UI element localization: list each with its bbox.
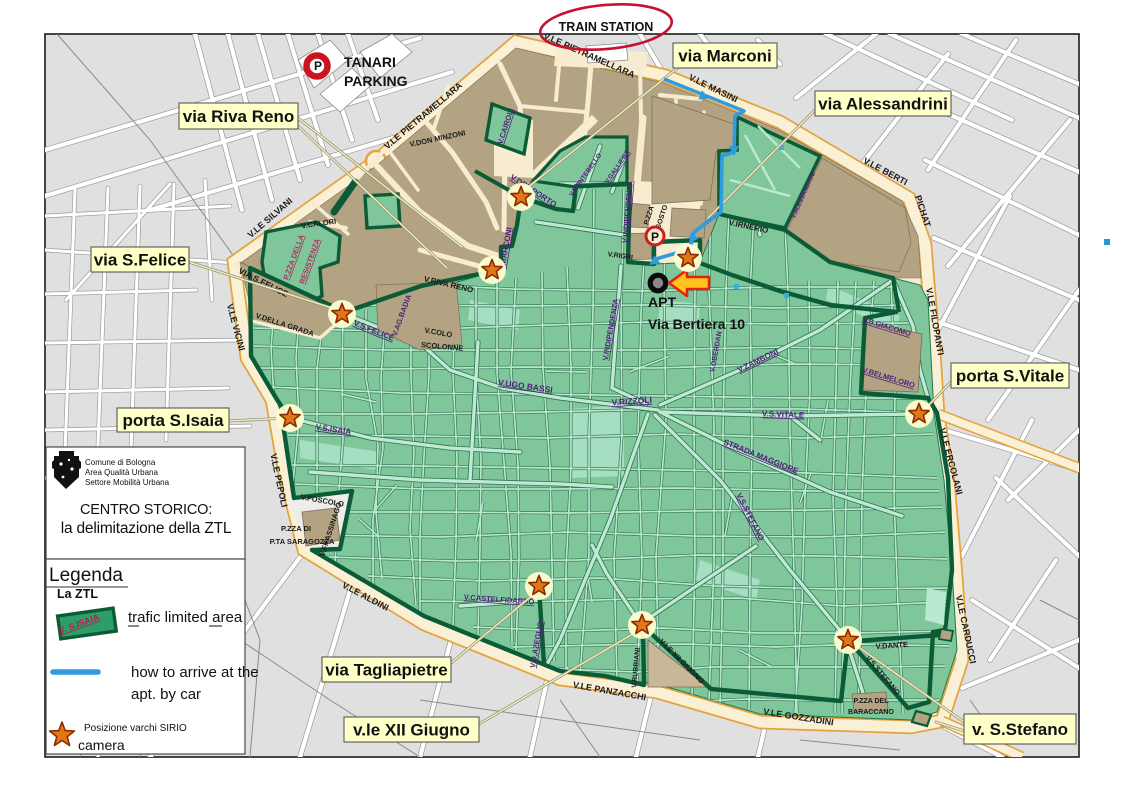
svg-text:la delimitazione della ZTL: la delimitazione della ZTL xyxy=(61,520,232,537)
svg-text:porta S.Vitale: porta S.Vitale xyxy=(956,367,1064,386)
svg-text:APT: APT xyxy=(648,294,676,310)
svg-text:via Marconi: via Marconi xyxy=(678,47,772,66)
svg-text:Area Qualità Urbana: Area Qualità Urbana xyxy=(85,468,158,477)
svg-text:CENTRO STORICO:: CENTRO STORICO: xyxy=(80,502,212,518)
svg-text:v.le XII Giugno: v.le XII Giugno xyxy=(353,721,470,740)
svg-text:TRAIN STATION: TRAIN STATION xyxy=(559,20,654,34)
svg-text:via Riva Reno: via Riva Reno xyxy=(183,107,295,126)
svg-text:V.S.VITALE: V.S.VITALE xyxy=(762,409,805,419)
svg-text:Via Bertiera 10: Via Bertiera 10 xyxy=(648,316,745,332)
svg-text:P.TA SARAGOZZA: P.TA SARAGOZZA xyxy=(270,537,335,546)
svg-text:PARKING: PARKING xyxy=(344,73,408,89)
svg-text:Settore Mobilità Urbana: Settore Mobilità Urbana xyxy=(85,478,170,487)
svg-text:Posizione varchi SIRIO: Posizione varchi SIRIO xyxy=(84,723,187,734)
svg-text:porta S.Isaia: porta S.Isaia xyxy=(122,411,224,430)
svg-text:via S.Felice: via S.Felice xyxy=(94,251,187,270)
svg-text:Comune di Bologna: Comune di Bologna xyxy=(85,458,156,467)
svg-text:via Alessandrini: via Alessandrini xyxy=(818,95,948,114)
svg-text:P: P xyxy=(651,230,659,244)
svg-text:Legenda: Legenda xyxy=(49,565,123,586)
svg-text:camera: camera xyxy=(78,737,125,753)
svg-text:BARACCANO: BARACCANO xyxy=(848,709,894,716)
svg-text:P.ZZA DI: P.ZZA DI xyxy=(281,524,311,533)
svg-text:via Tagliapietre: via Tagliapietre xyxy=(325,661,448,680)
svg-text:trafic limited area: trafic limited area xyxy=(128,609,243,626)
svg-text:how to arrive at the: how to arrive at the xyxy=(131,664,259,681)
svg-text:P.ZZA DEL: P.ZZA DEL xyxy=(853,698,889,705)
svg-text:La ZTL: La ZTL xyxy=(57,587,98,601)
svg-text:apt. by car: apt. by car xyxy=(131,686,201,703)
svg-text:v. S.Stefano: v. S.Stefano xyxy=(972,720,1068,739)
svg-text:TANARI: TANARI xyxy=(344,54,396,70)
svg-text:P: P xyxy=(314,59,322,73)
